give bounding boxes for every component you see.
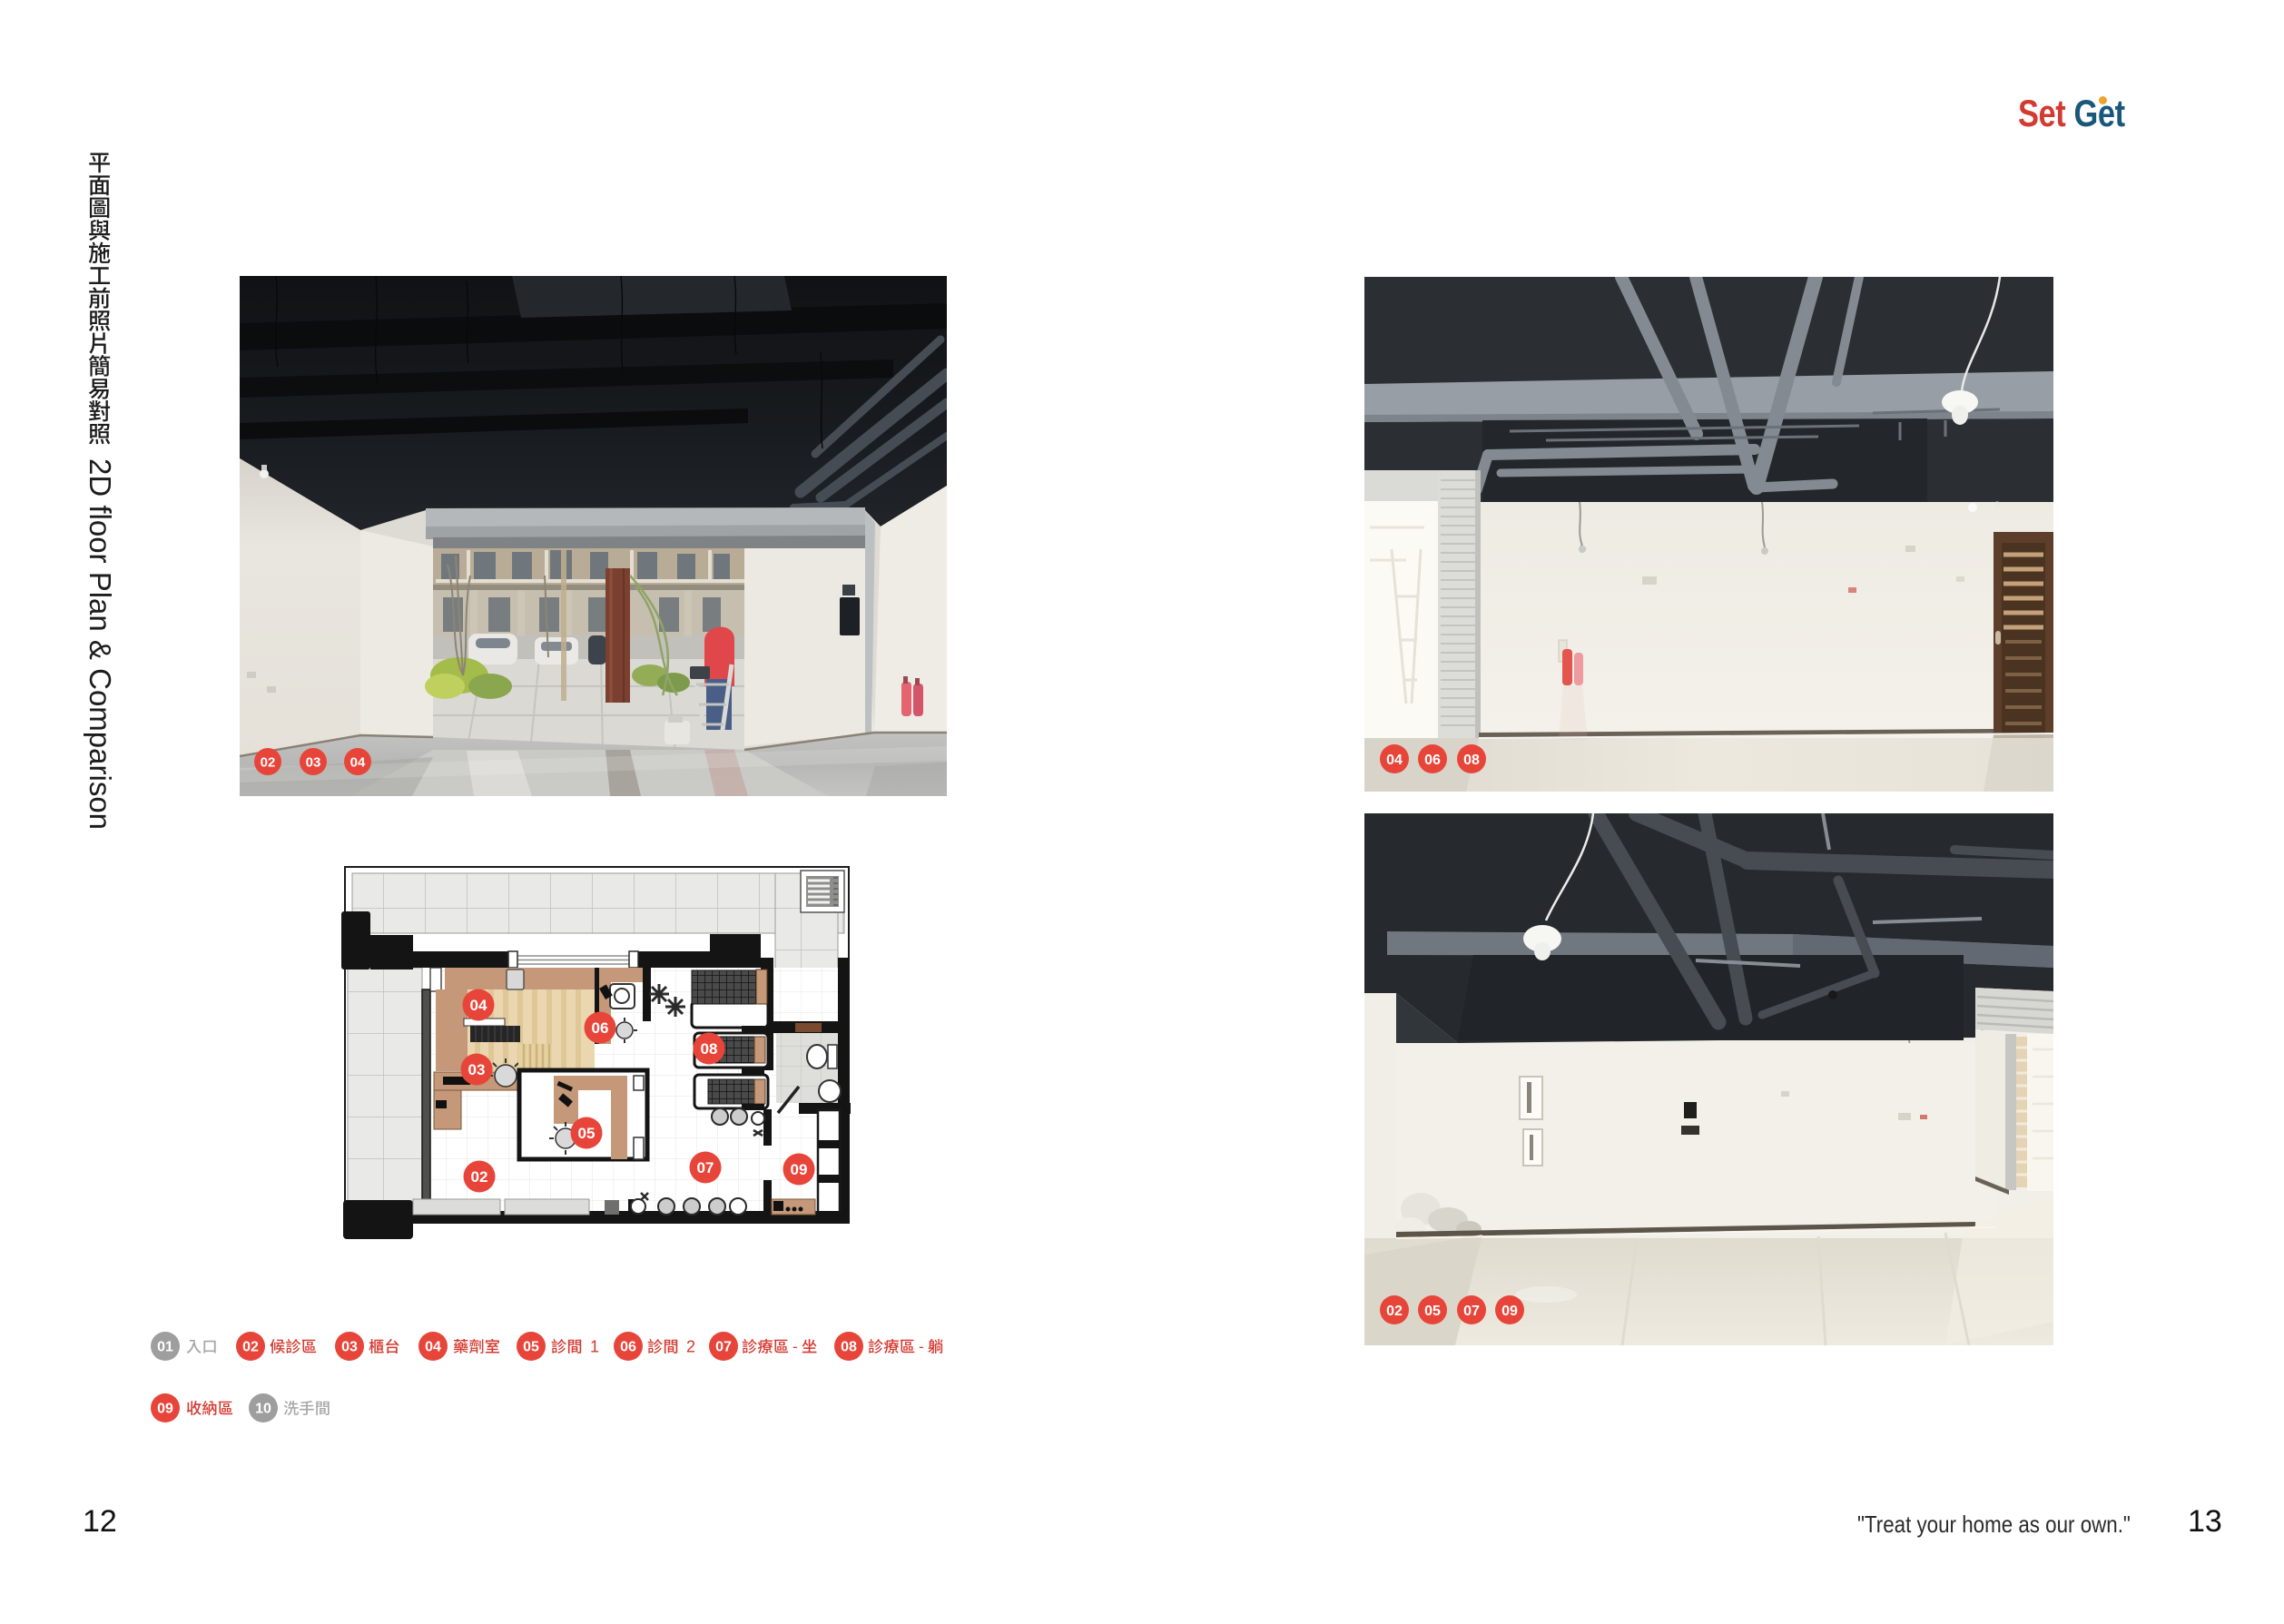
svg-text:-: -	[793, 1338, 798, 1355]
svg-text:09: 09	[791, 1161, 808, 1178]
svg-text:06: 06	[620, 1340, 636, 1355]
svg-text:-: -	[919, 1338, 924, 1355]
svg-text:1: 1	[590, 1338, 599, 1356]
svg-text:04: 04	[425, 1340, 441, 1355]
svg-text:2: 2	[686, 1338, 695, 1356]
svg-text:08: 08	[841, 1340, 857, 1355]
svg-text:07: 07	[1463, 1304, 1480, 1319]
svg-text:07: 07	[697, 1159, 714, 1176]
svg-text:08: 08	[701, 1040, 718, 1058]
svg-text:07: 07	[715, 1340, 732, 1355]
svg-text:08: 08	[1463, 753, 1480, 768]
svg-text:04: 04	[470, 997, 487, 1014]
svg-text:06: 06	[592, 1019, 609, 1037]
svg-text:02: 02	[242, 1340, 259, 1355]
svg-text:03: 03	[306, 755, 321, 771]
svg-text:04: 04	[1386, 753, 1403, 768]
svg-text:02: 02	[261, 755, 276, 771]
svg-text:2D floor Plan & Comparison: 2D floor Plan & Comparison	[84, 458, 117, 830]
svg-text:10: 10	[255, 1402, 271, 1417]
svg-text:05: 05	[1424, 1304, 1441, 1319]
svg-text:03: 03	[468, 1061, 486, 1078]
svg-text:05: 05	[523, 1340, 539, 1355]
svg-text:02: 02	[1386, 1304, 1403, 1319]
svg-text:06: 06	[1424, 753, 1441, 768]
svg-text:01: 01	[157, 1340, 173, 1355]
svg-text:02: 02	[471, 1168, 488, 1186]
svg-text:09: 09	[157, 1402, 173, 1417]
svg-text:04: 04	[350, 755, 366, 771]
svg-text:09: 09	[1501, 1304, 1518, 1319]
svg-text:05: 05	[578, 1125, 596, 1142]
svg-text:03: 03	[341, 1340, 358, 1355]
